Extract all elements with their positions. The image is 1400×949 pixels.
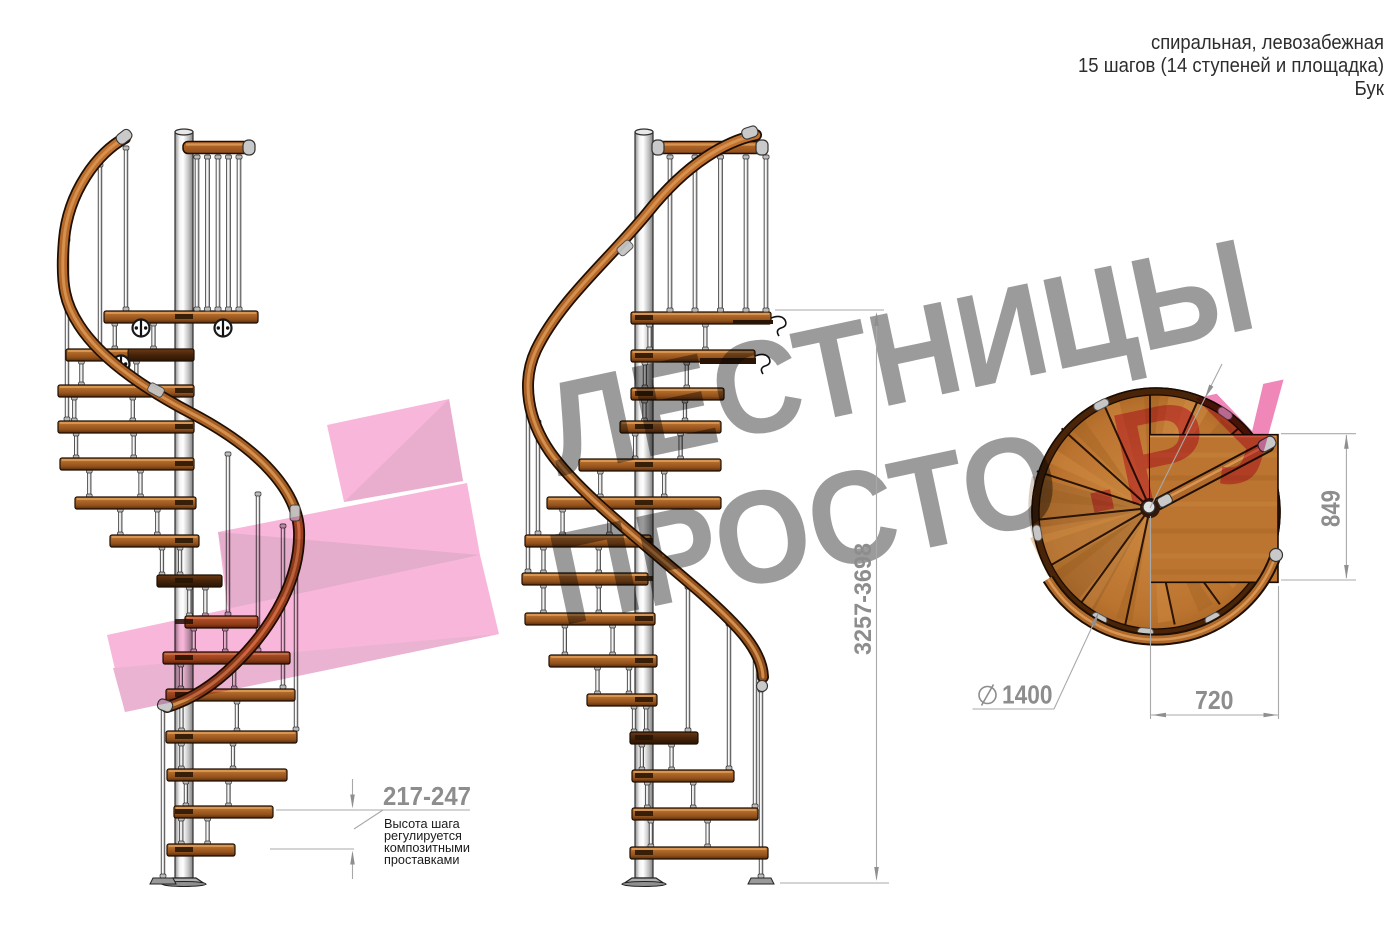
svg-text:720: 720: [1195, 687, 1234, 715]
svg-text:849: 849: [1318, 490, 1346, 527]
svg-text:15 шагов (14 ступеней и площад: 15 шагов (14 ступеней и площадка): [1078, 54, 1384, 77]
svg-text:проставками: проставками: [384, 853, 460, 867]
svg-text:1400: 1400: [1002, 682, 1053, 710]
svg-text:спиральная, левозабежная: спиральная, левозабежная: [1151, 31, 1384, 54]
svg-text:217-247: 217-247: [383, 783, 471, 811]
svg-text:Бук: Бук: [1355, 77, 1385, 100]
svg-text:3257-3698: 3257-3698: [850, 543, 877, 655]
